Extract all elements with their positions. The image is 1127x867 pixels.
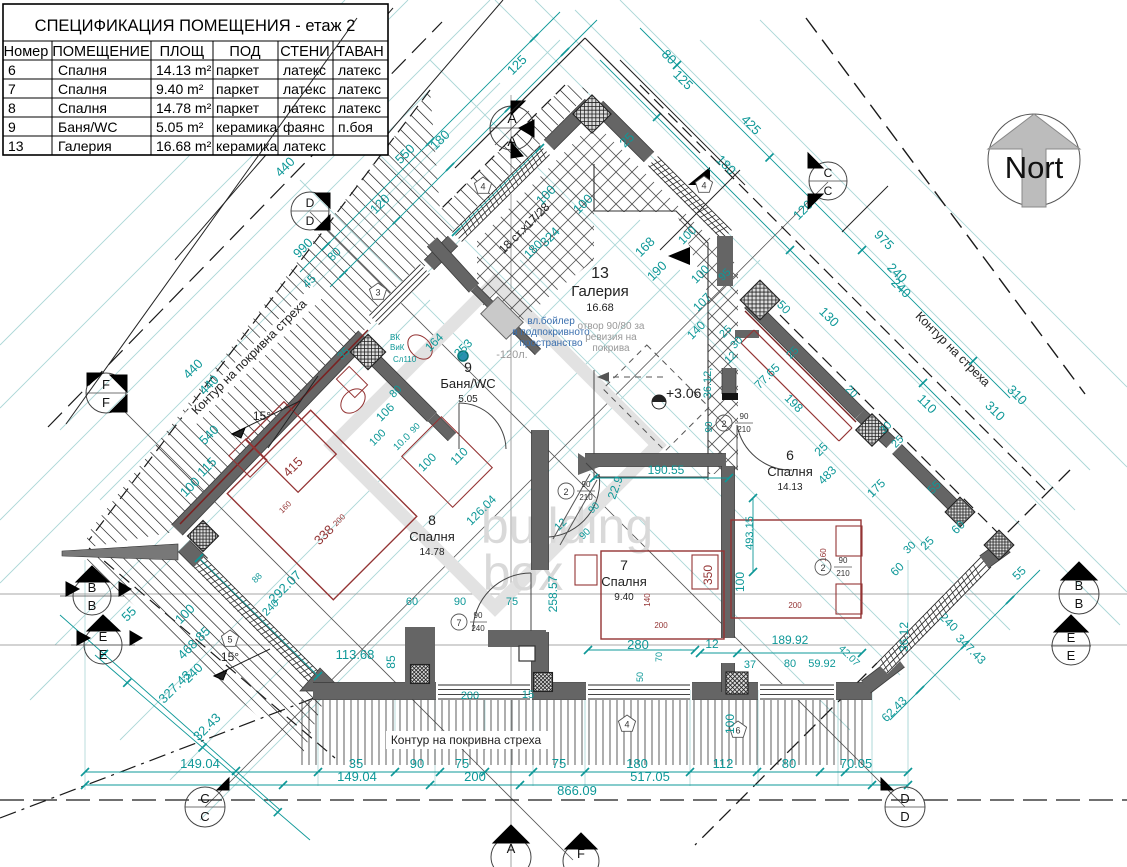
svg-text:190.55: 190.55 [648, 463, 685, 477]
svg-text:90: 90 [410, 756, 424, 771]
svg-text:керамика: керамика [216, 119, 278, 135]
svg-text:210: 210 [836, 569, 850, 578]
svg-text:пространство: пространство [519, 338, 583, 349]
svg-text:15°: 15° [221, 650, 239, 664]
svg-text:п.боя: п.боя [338, 119, 373, 135]
svg-text:14.78 m²: 14.78 m² [156, 100, 212, 116]
svg-text:16.68 m²: 16.68 m² [156, 138, 212, 154]
svg-text:12: 12 [705, 637, 719, 651]
svg-text:70: 70 [654, 652, 664, 662]
svg-text:50: 50 [635, 672, 645, 682]
svg-text:C: C [824, 166, 833, 180]
svg-text:4: 4 [480, 182, 485, 192]
svg-text:100: 100 [723, 714, 737, 734]
svg-text:517.05: 517.05 [630, 769, 670, 784]
svg-text:паркет: паркет [216, 100, 260, 116]
svg-text:ревизия на: ревизия на [585, 332, 637, 343]
svg-text:Сл110: Сл110 [393, 355, 417, 364]
svg-text:D: D [900, 809, 909, 824]
svg-text:90: 90 [474, 611, 483, 620]
svg-text:4: 4 [701, 181, 706, 191]
svg-text:Галерия: Галерия [58, 138, 112, 154]
svg-text:2: 2 [820, 563, 825, 573]
svg-text:Спалня: Спалня [409, 529, 454, 544]
svg-text:70.05: 70.05 [840, 756, 873, 771]
svg-text:200: 200 [654, 621, 668, 630]
svg-text:Баня/WC: Баня/WC [58, 119, 118, 135]
svg-text:E: E [1067, 648, 1076, 663]
svg-text:9: 9 [464, 359, 472, 375]
svg-text:ПЛОЩ: ПЛОЩ [160, 44, 205, 60]
svg-text:3: 3 [375, 288, 380, 298]
svg-text:ТАВАН: ТАВАН [336, 44, 383, 60]
svg-text:5: 5 [227, 635, 232, 645]
svg-text:6: 6 [8, 62, 16, 78]
svg-text:866.09: 866.09 [557, 783, 597, 798]
svg-text:149.04: 149.04 [337, 769, 377, 784]
svg-text:2: 2 [563, 487, 568, 497]
svg-text:75: 75 [552, 756, 566, 771]
svg-text:латекс: латекс [338, 81, 381, 97]
svg-text:75: 75 [506, 596, 518, 608]
svg-text:200: 200 [461, 690, 479, 702]
svg-text:90: 90 [704, 421, 715, 433]
svg-text:112: 112 [713, 756, 734, 771]
svg-text:Баня/WC: Баня/WC [440, 376, 495, 391]
svg-text:14.13 m²: 14.13 m² [156, 62, 212, 78]
svg-text:D: D [900, 791, 909, 806]
svg-text:13: 13 [591, 265, 609, 282]
svg-text:Галерия: Галерия [571, 283, 629, 300]
svg-text:латекс: латекс [283, 100, 326, 116]
svg-text:C: C [200, 809, 209, 824]
svg-text:140: 140 [643, 593, 652, 607]
svg-text:100: 100 [733, 572, 747, 592]
svg-text:4: 4 [624, 720, 629, 730]
svg-text:ВК: ВК [390, 333, 400, 342]
svg-text:B: B [1075, 596, 1084, 611]
svg-text:2: 2 [721, 419, 726, 429]
svg-text:фаянс: фаянс [283, 119, 325, 135]
svg-text:200: 200 [788, 601, 802, 610]
svg-text:80: 80 [782, 756, 796, 771]
svg-text:ВиК: ВиК [390, 343, 405, 352]
svg-text:паркет: паркет [216, 81, 260, 97]
svg-text:210: 210 [737, 425, 751, 434]
svg-text:СТЕНИ: СТЕНИ [280, 44, 329, 60]
svg-text:240: 240 [471, 624, 485, 633]
svg-text:258.57: 258.57 [546, 575, 560, 612]
svg-text:200: 200 [464, 769, 486, 784]
svg-text:113.68: 113.68 [336, 647, 375, 662]
svg-text:B: B [88, 598, 97, 613]
svg-text:210: 210 [579, 493, 593, 502]
svg-text:90: 90 [740, 412, 749, 421]
svg-text:ПОД: ПОД [229, 44, 260, 60]
svg-text:E: E [99, 647, 108, 662]
svg-text:латекс: латекс [338, 100, 381, 116]
svg-text:14.78: 14.78 [419, 547, 444, 558]
svg-text:9.40: 9.40 [614, 592, 634, 603]
svg-text:покрива: покрива [592, 343, 630, 354]
svg-text:37: 37 [744, 659, 756, 671]
svg-text:Спалня: Спалня [58, 81, 107, 97]
svg-text:Спалня: Спалня [601, 574, 646, 589]
svg-text:Nort: Nort [1005, 150, 1064, 185]
svg-text:90: 90 [839, 556, 848, 565]
svg-text:C: C [824, 184, 833, 198]
svg-text:85: 85 [384, 655, 398, 669]
svg-text:16.68: 16.68 [586, 302, 614, 314]
svg-text:паркет: паркет [216, 62, 260, 78]
svg-text:5.05: 5.05 [458, 394, 478, 405]
svg-text:7: 7 [8, 81, 16, 97]
svg-text:латекс: латекс [283, 138, 326, 154]
svg-text:60: 60 [406, 596, 418, 608]
svg-text:7: 7 [620, 557, 628, 573]
svg-text:7: 7 [456, 618, 461, 628]
svg-text:Спалня: Спалня [767, 464, 812, 479]
svg-text:6: 6 [786, 447, 794, 463]
svg-text:вл.бойлер: вл.бойлер [527, 315, 575, 327]
svg-text:СПЕЦИФИКАЦИЯ ПОМЕЩЕНИЯ - етаж: СПЕЦИФИКАЦИЯ ПОМЕЩЕНИЯ - етаж 2 [35, 17, 356, 35]
svg-text:59.92: 59.92 [808, 658, 836, 670]
svg-text:Спалня: Спалня [58, 62, 107, 78]
svg-text:отвор 90/80 за: отвор 90/80 за [578, 321, 645, 332]
svg-text:ПОМЕЩЕНИЕ: ПОМЕЩЕНИЕ [52, 44, 150, 60]
svg-text:8: 8 [428, 512, 436, 528]
svg-text:5.05 m²: 5.05 m² [156, 119, 204, 135]
svg-text:C: C [200, 791, 209, 806]
svg-text:D: D [306, 214, 315, 228]
svg-text:латекс: латекс [283, 81, 326, 97]
svg-text:D: D [306, 196, 315, 210]
svg-text:+3.06: +3.06 [666, 385, 702, 401]
svg-text:Спалня: Спалня [58, 100, 107, 116]
svg-text:80: 80 [784, 658, 796, 670]
svg-text:149.04: 149.04 [180, 756, 220, 771]
svg-text:Контур на покривна стреха: Контур на покривна стреха [391, 733, 542, 747]
svg-text:8: 8 [8, 100, 16, 116]
svg-text:13: 13 [8, 138, 24, 154]
svg-text:-120л.: -120л. [496, 349, 528, 361]
svg-text:189.92: 189.92 [772, 633, 809, 647]
svg-text:F: F [102, 395, 110, 410]
svg-text:14.13: 14.13 [777, 482, 802, 493]
svg-text:36.12,: 36.12, [702, 368, 714, 399]
svg-text:15: 15 [522, 689, 534, 701]
svg-text:латекс: латекс [338, 62, 381, 78]
svg-text:F: F [102, 377, 110, 392]
svg-text:керамика: керамика [216, 138, 278, 154]
svg-text:9: 9 [8, 119, 16, 135]
svg-text:9.40 m²: 9.40 m² [156, 81, 204, 97]
svg-text:350: 350 [701, 565, 715, 585]
svg-text:Номер: Номер [4, 44, 49, 60]
svg-text:36.12: 36.12 [897, 622, 911, 652]
svg-text:90: 90 [454, 596, 466, 608]
svg-text:493.15: 493.15 [744, 516, 756, 550]
